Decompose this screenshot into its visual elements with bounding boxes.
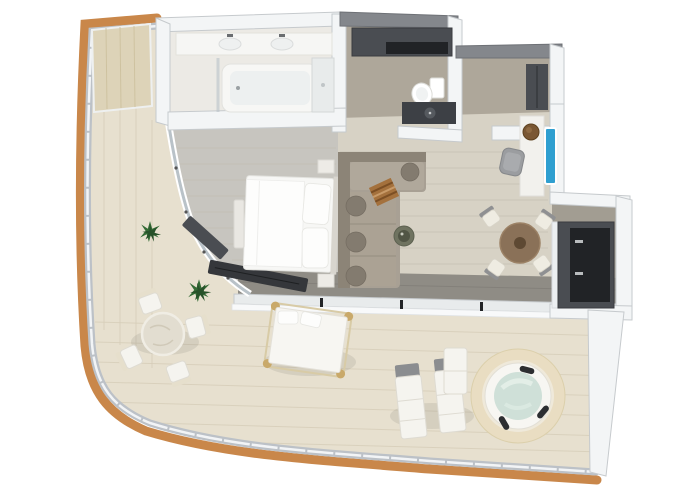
outdoor-dining-table <box>142 313 184 355</box>
daybed-pillow <box>278 311 298 324</box>
door-mullion <box>400 300 403 309</box>
wall-closet-top <box>340 12 458 28</box>
bed-bench <box>234 200 244 248</box>
privacy-screen <box>92 24 152 112</box>
sink <box>219 38 241 50</box>
floor-plan-stage <box>0 0 680 486</box>
door-mullion <box>480 302 483 311</box>
kitchen-appliances <box>570 228 610 302</box>
glass-mullion <box>174 166 177 169</box>
faucet <box>279 34 285 37</box>
dining-table-center <box>514 237 526 249</box>
tub-faucet <box>236 86 240 90</box>
tv-panel <box>545 128 556 184</box>
door-mullion <box>320 298 323 307</box>
wall-entry-top <box>456 44 562 58</box>
wc-faucet <box>429 112 432 115</box>
faucet <box>227 34 233 37</box>
double-bed <box>243 173 339 274</box>
shower-drain <box>321 83 325 87</box>
floor-plan-svg <box>0 0 680 486</box>
wall-kitchen-right <box>616 196 632 318</box>
wall-bathroom-left <box>156 18 170 126</box>
wall-terrace-right <box>588 310 624 476</box>
daybed <box>262 301 354 379</box>
wardrobe-shelf <box>386 42 448 54</box>
nightstand <box>318 160 334 173</box>
appliance-detail <box>575 272 583 275</box>
bathtub-basin <box>230 71 310 105</box>
coffee-table <box>394 226 414 246</box>
sink <box>271 38 293 50</box>
glass-mullion <box>184 210 187 213</box>
hot-tub <box>471 349 565 443</box>
entry-hall <box>526 64 548 110</box>
nightstand <box>318 274 334 287</box>
sink-vanity <box>176 33 332 55</box>
appliance-detail <box>575 240 583 243</box>
stool-top <box>526 127 532 133</box>
glass-mullion <box>202 250 205 253</box>
kitchenette <box>552 222 614 308</box>
